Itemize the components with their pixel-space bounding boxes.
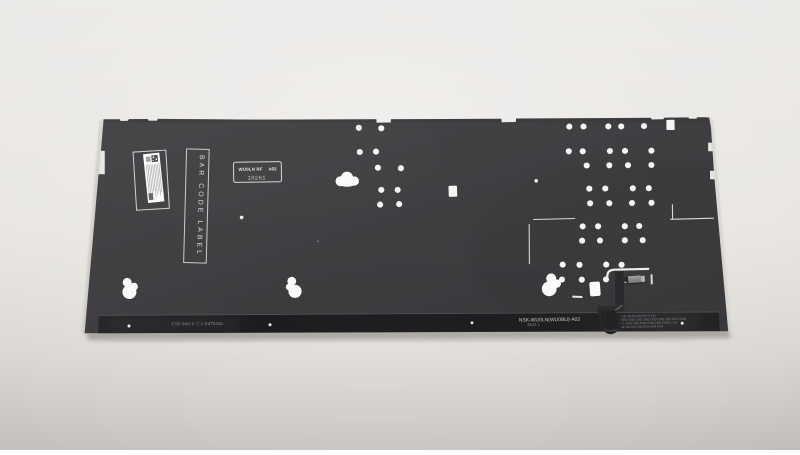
svg-text:10261: 10261: [247, 174, 266, 181]
svg-text:WU0LN RF: WU0LN RF: [238, 167, 262, 172]
svg-text:W- CN CN CN4 CN4 CN4 CN4: W- CN CN CN4 CN4 CN4 CN4: [622, 324, 664, 329]
svg-text:A02: A02: [268, 166, 277, 171]
svg-text:8242 1: 8242 1: [528, 322, 541, 327]
svg-text:CSF 94V-0 Ⓣ 1 E475341: CSF 94V-0 Ⓣ 1 E475341: [171, 321, 223, 326]
